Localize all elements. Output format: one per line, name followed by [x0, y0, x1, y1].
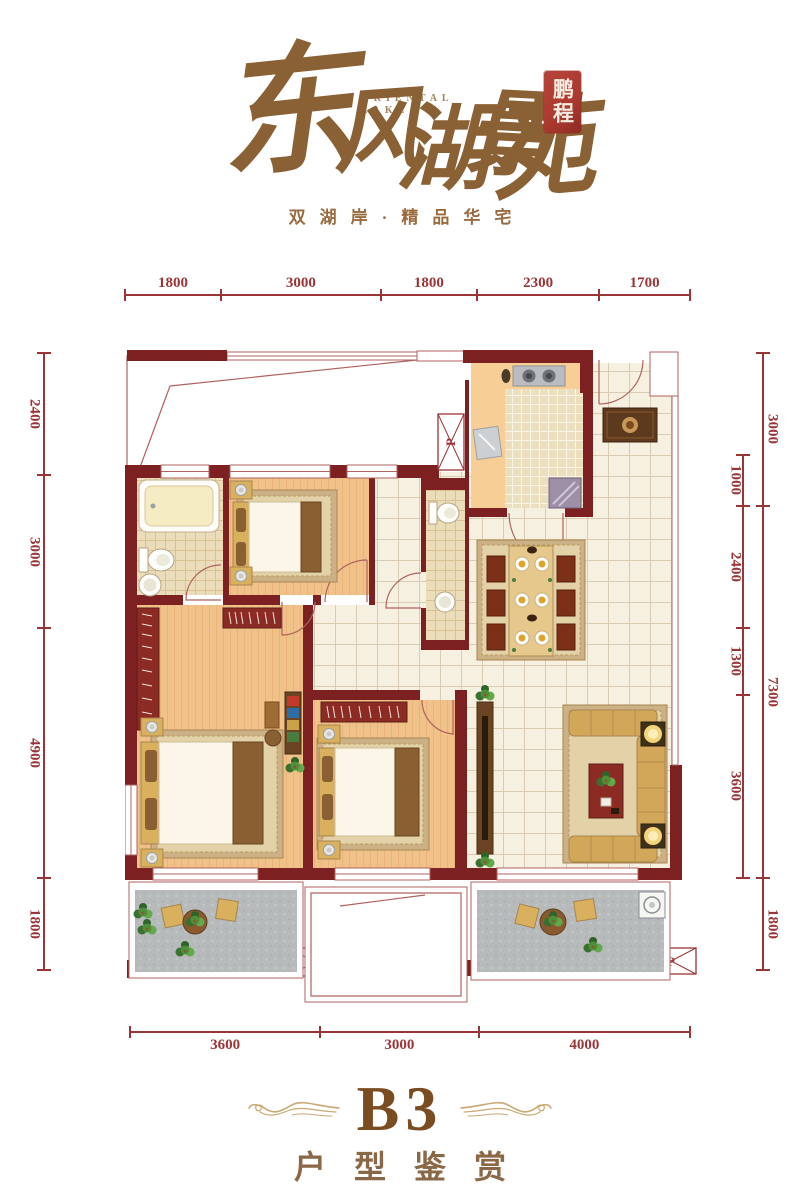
bed	[335, 748, 395, 836]
dim-segment: 4900	[25, 628, 43, 878]
flourish-right-icon	[459, 1095, 554, 1123]
dim-segment: 3000	[320, 1033, 478, 1057]
unit-title-row: B3	[0, 1072, 800, 1146]
toilet	[429, 502, 437, 524]
dim-segment: 3600	[130, 1033, 320, 1057]
dim-segment: 2400	[25, 353, 43, 475]
brand-seal: 鹏程	[544, 71, 581, 133]
dim-segment: 1800	[25, 878, 43, 970]
chair	[557, 590, 575, 616]
dim-segment: 1800	[381, 272, 477, 294]
bed-blanket	[395, 748, 419, 836]
window	[672, 396, 678, 765]
pipe-shaft: P	[438, 414, 464, 470]
bed	[159, 742, 233, 844]
dim-segment: 1800	[125, 272, 221, 294]
balcony-floor	[135, 890, 297, 972]
balcony-chair	[515, 904, 539, 928]
logo-title-char-5: 苑	[484, 92, 599, 207]
dim-segment: 3000	[221, 272, 381, 294]
kitchen-jar	[502, 369, 511, 383]
dim-segment: 1700	[599, 272, 690, 294]
balcony-chair	[161, 904, 185, 928]
balcony-left	[129, 882, 303, 978]
dim-segment: 3000	[764, 353, 780, 506]
entry-porch	[650, 352, 678, 396]
dimension-line-left: 2400 3000 4900 1800	[25, 353, 45, 970]
sofa-seat	[637, 736, 665, 836]
dining-area	[477, 540, 585, 660]
open-area-bottom	[305, 887, 467, 1002]
chair	[557, 556, 575, 582]
brand-seal-text: 鹏程	[548, 78, 578, 126]
balcony-floor	[477, 890, 664, 972]
bed-blanket	[233, 742, 263, 844]
dim-segment: 1000	[728, 455, 742, 506]
dimension-line-top: 1800 3000 1800 2300 1700	[125, 272, 690, 296]
balcony-chair	[574, 899, 597, 922]
balcony-chair	[216, 899, 239, 922]
bed	[249, 502, 301, 572]
unit-code: B3	[357, 1072, 444, 1146]
dimension-line-right-inner: 1000 2400 1300 3600	[728, 455, 744, 878]
floor-plan: P P P	[125, 350, 700, 1010]
dim-segment: 1800	[764, 878, 780, 970]
chair	[487, 590, 505, 616]
dim-segment: 7300	[764, 506, 780, 878]
open-area	[127, 350, 465, 472]
stove	[513, 366, 565, 386]
page: ORIENTAL LAKE 东 风 湖 景 苑 鹏程 双湖岸·精品华宅 1800…	[0, 0, 800, 1200]
entry	[603, 408, 657, 442]
dimension-line-bottom: 3600 3000 4000	[130, 1031, 690, 1057]
coffee-table-book	[601, 798, 611, 806]
unit-caption: 户型鉴赏	[0, 1142, 800, 1188]
wardrobe	[137, 608, 159, 730]
dim-segment: 4000	[479, 1033, 690, 1057]
balcony-right	[471, 882, 670, 980]
desk-chair	[265, 730, 281, 746]
chair	[487, 624, 505, 650]
dim-segment: 2300	[477, 272, 600, 294]
desk	[265, 702, 279, 728]
chair	[487, 556, 505, 582]
wardrobe	[223, 608, 281, 628]
svg-text:P: P	[443, 438, 458, 446]
dim-segment: 1300	[728, 628, 742, 694]
flourish-left-icon	[246, 1095, 341, 1123]
dimension-line-right-outer: 3000 7300 1800	[762, 353, 780, 970]
dim-segment: 3600	[728, 695, 742, 878]
chair	[557, 624, 575, 650]
brand-tagline: 双湖岸·精品华宅	[0, 203, 800, 228]
tv	[482, 716, 488, 840]
bedroom-2	[230, 481, 337, 585]
dim-segment: 2400	[728, 506, 742, 628]
corridor-tile-floor	[311, 605, 369, 693]
bed-blanket	[301, 502, 321, 572]
toilet	[139, 548, 148, 572]
dim-segment: 3000	[25, 475, 43, 628]
